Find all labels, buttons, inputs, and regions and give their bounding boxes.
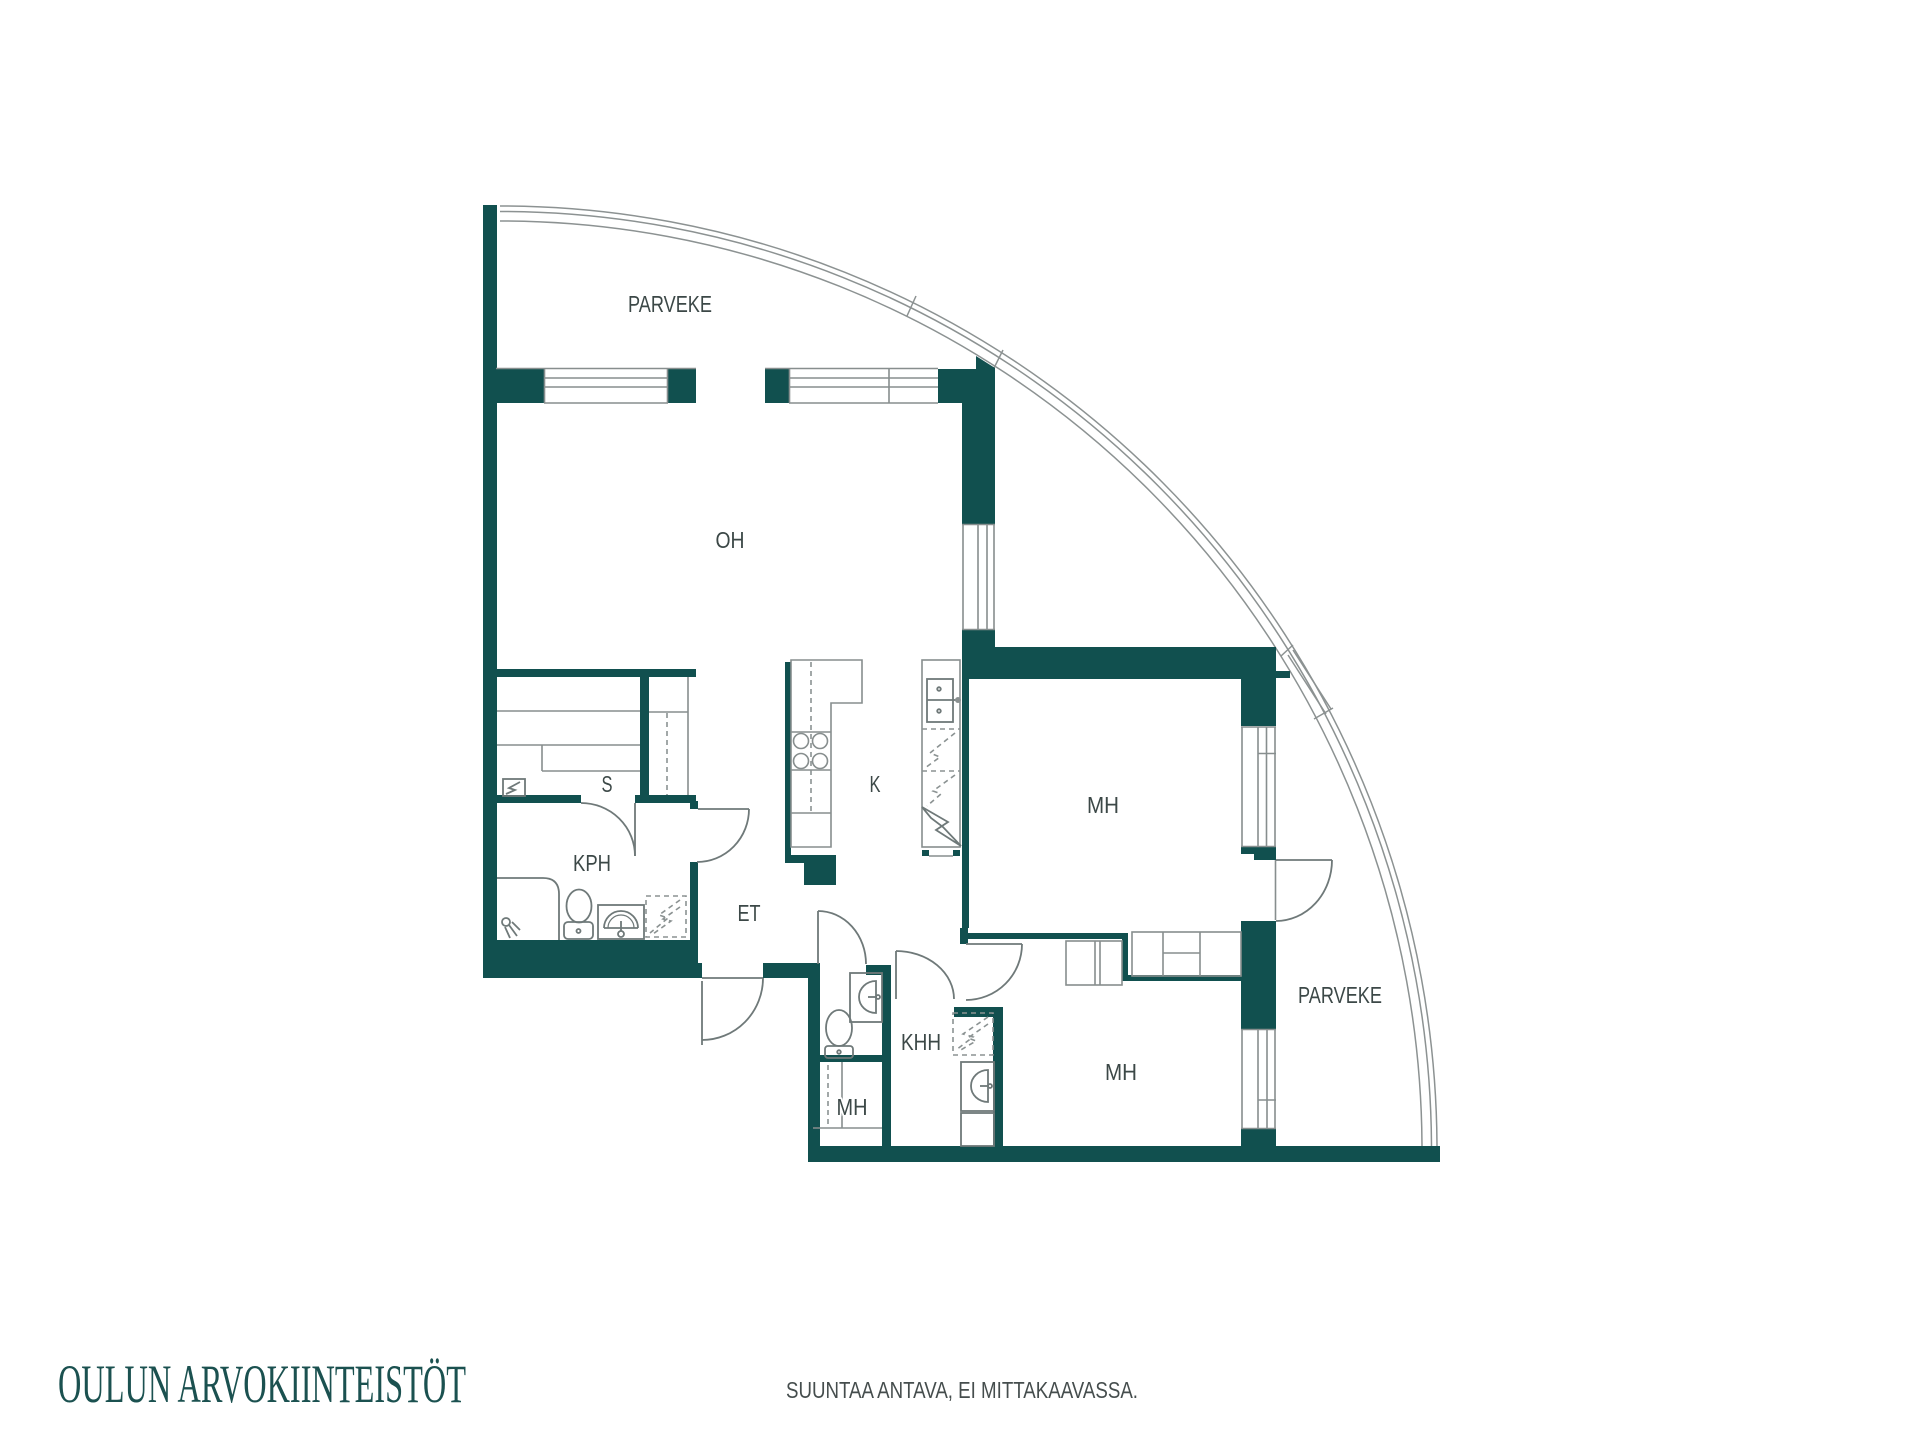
svg-text:OH: OH [716, 527, 745, 553]
svg-text:MH: MH [837, 1094, 868, 1120]
svg-text:KHH: KHH [901, 1029, 941, 1055]
svg-text:K: K [870, 771, 881, 797]
svg-text:MH: MH [1105, 1059, 1137, 1085]
svg-text:KPH: KPH [573, 850, 611, 876]
svg-text:S: S [602, 771, 613, 797]
svg-text:PARVEKE: PARVEKE [1298, 982, 1382, 1008]
svg-text:ET: ET [738, 900, 761, 926]
svg-text:PARVEKE: PARVEKE [628, 291, 712, 317]
svg-text:SUUNTAA ANTAVA, EI MITTAKAAVAS: SUUNTAA ANTAVA, EI MITTAKAAVASSA. [786, 1377, 1138, 1403]
svg-text:MH: MH [1087, 792, 1119, 818]
svg-text:OULUN ARVOKIINTEISTÖT: OULUN ARVOKIINTEISTÖT [58, 1354, 466, 1414]
